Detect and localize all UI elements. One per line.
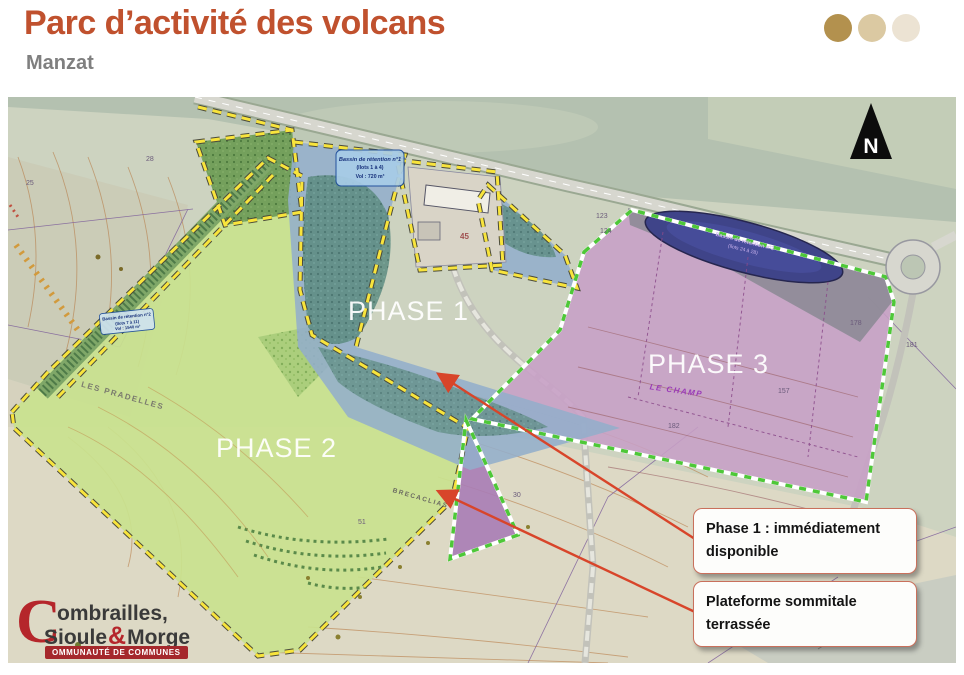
phase2-label: PHASE 2 (216, 433, 337, 463)
site-plan-map: 45 (8, 97, 956, 663)
logo-banner: OMMUNAUTÉ DE COMMUNES (45, 646, 188, 659)
decor-dot-3 (892, 14, 920, 42)
callout-platform: Plateforme sommitale terrassée (693, 581, 917, 647)
svg-text:181: 181 (906, 342, 918, 349)
svg-text:Bassin de rétention n°1: Bassin de rétention n°1 (339, 157, 401, 163)
phase3-label: PHASE 3 (648, 349, 769, 379)
svg-text:182: 182 (668, 423, 680, 430)
decor-dot-1 (824, 14, 852, 42)
page-subtitle: Manzat (26, 52, 94, 75)
decor-dot-2 (858, 14, 886, 42)
north-arrow-label: N (863, 135, 878, 158)
decor-dots (824, 14, 920, 42)
svg-text:178: 178 (850, 320, 862, 327)
svg-text:(îlots 1 à 4): (îlots 1 à 4) (356, 165, 383, 171)
svg-text:124: 124 (600, 228, 612, 235)
slide: Parc d’activité des volcans Manzat (0, 0, 964, 675)
svg-text:30: 30 (513, 492, 521, 499)
logo-combrailles: C ombrailles, Sioule&Morge OMMUNAUTÉ DE … (14, 594, 194, 666)
phase1-label: PHASE 1 (348, 296, 469, 326)
building-number: 45 (460, 232, 469, 241)
map-svg: 45 (8, 97, 956, 663)
callout-phase1-available: Phase 1 : immédiatement disponible (693, 508, 917, 574)
svg-text:51: 51 (358, 519, 366, 526)
page-title: Parc d’activité des volcans (24, 4, 445, 43)
roundabout (886, 240, 940, 294)
svg-text:Vol : 720 m³: Vol : 720 m³ (356, 174, 385, 180)
svg-text:25: 25 (26, 180, 34, 187)
svg-text:123: 123 (596, 213, 608, 220)
building-area: 45 (408, 167, 506, 267)
svg-text:28: 28 (146, 156, 154, 163)
svg-text:157: 157 (778, 388, 790, 395)
basin1-label: Bassin de rétention n°1 (îlots 1 à 4) Vo… (336, 150, 404, 186)
